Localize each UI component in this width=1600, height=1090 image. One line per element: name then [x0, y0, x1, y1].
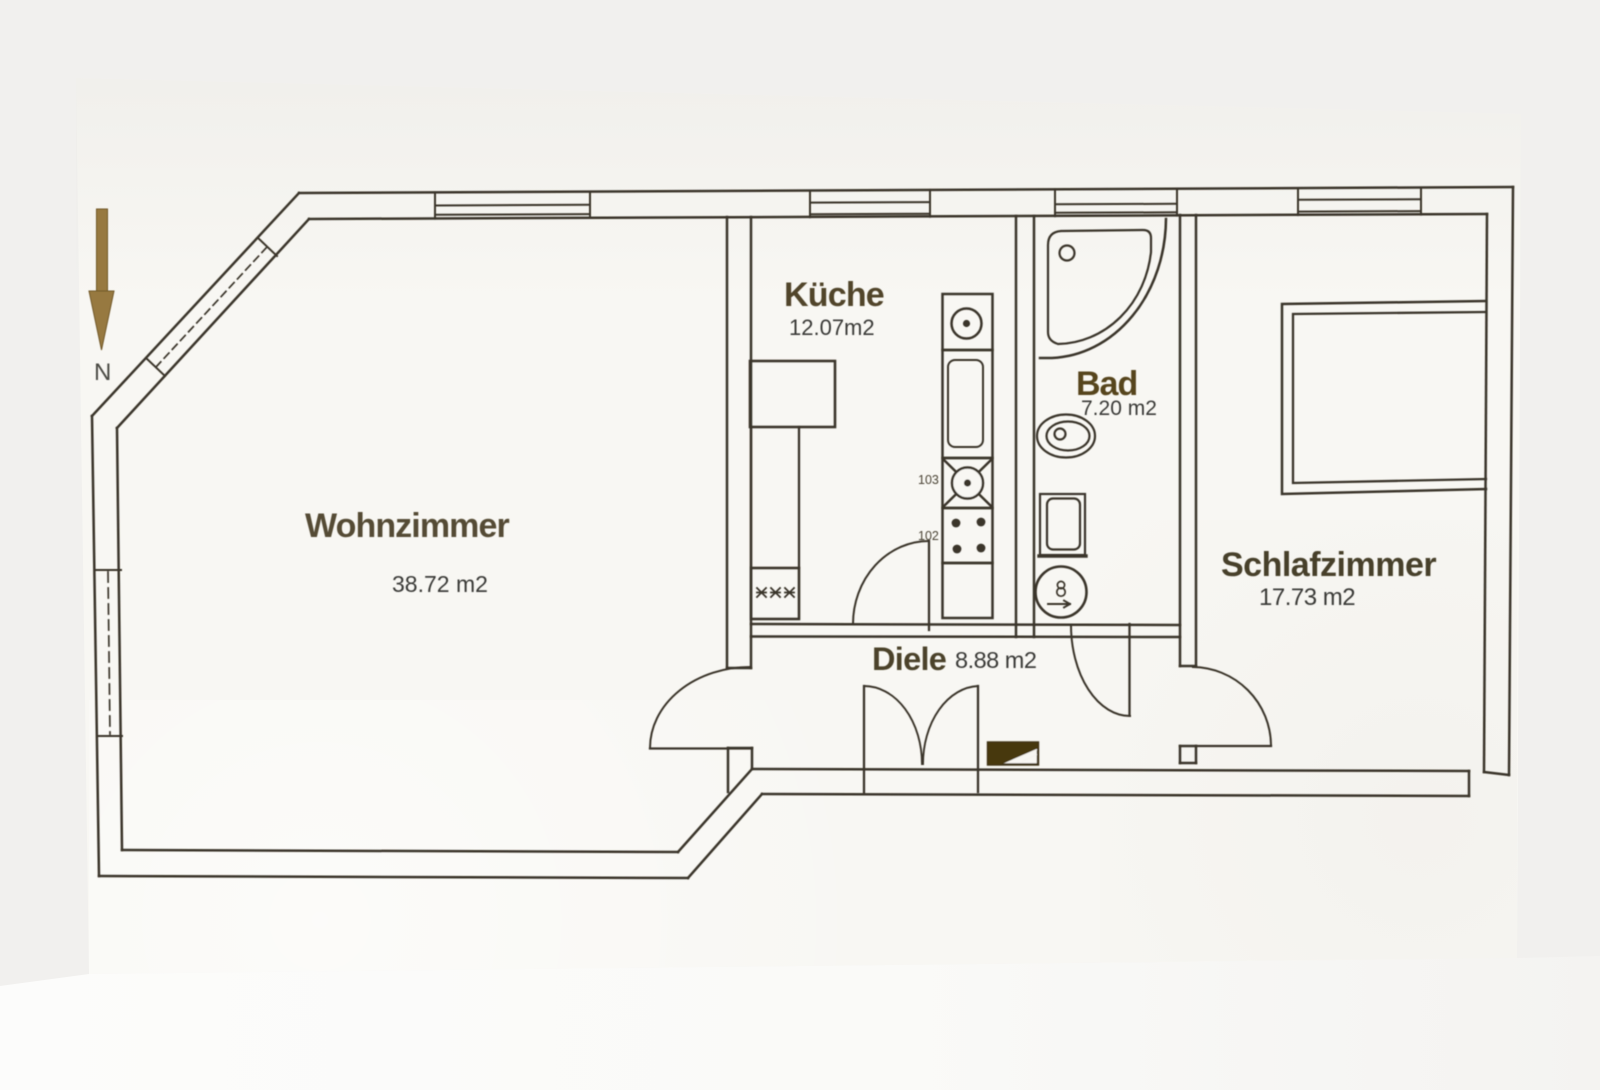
svg-text:8.88 m2: 8.88 m2 — [955, 647, 1036, 673]
svg-text:103: 103 — [918, 473, 939, 487]
svg-text:17.73 m2: 17.73 m2 — [1259, 584, 1355, 611]
svg-text:102: 102 — [918, 529, 939, 543]
svg-text:Schlafzimmer: Schlafzimmer — [1221, 546, 1436, 584]
svg-text:Diele: Diele — [872, 641, 946, 677]
svg-text:12.07m2: 12.07m2 — [789, 315, 875, 340]
svg-text:Küche: Küche — [784, 276, 884, 314]
svg-text:N: N — [94, 359, 111, 386]
svg-text:7.20 m2: 7.20 m2 — [1081, 397, 1157, 420]
svg-text:38.72 m2: 38.72 m2 — [392, 571, 488, 597]
svg-text:Wohnzimmer: Wohnzimmer — [305, 507, 510, 545]
